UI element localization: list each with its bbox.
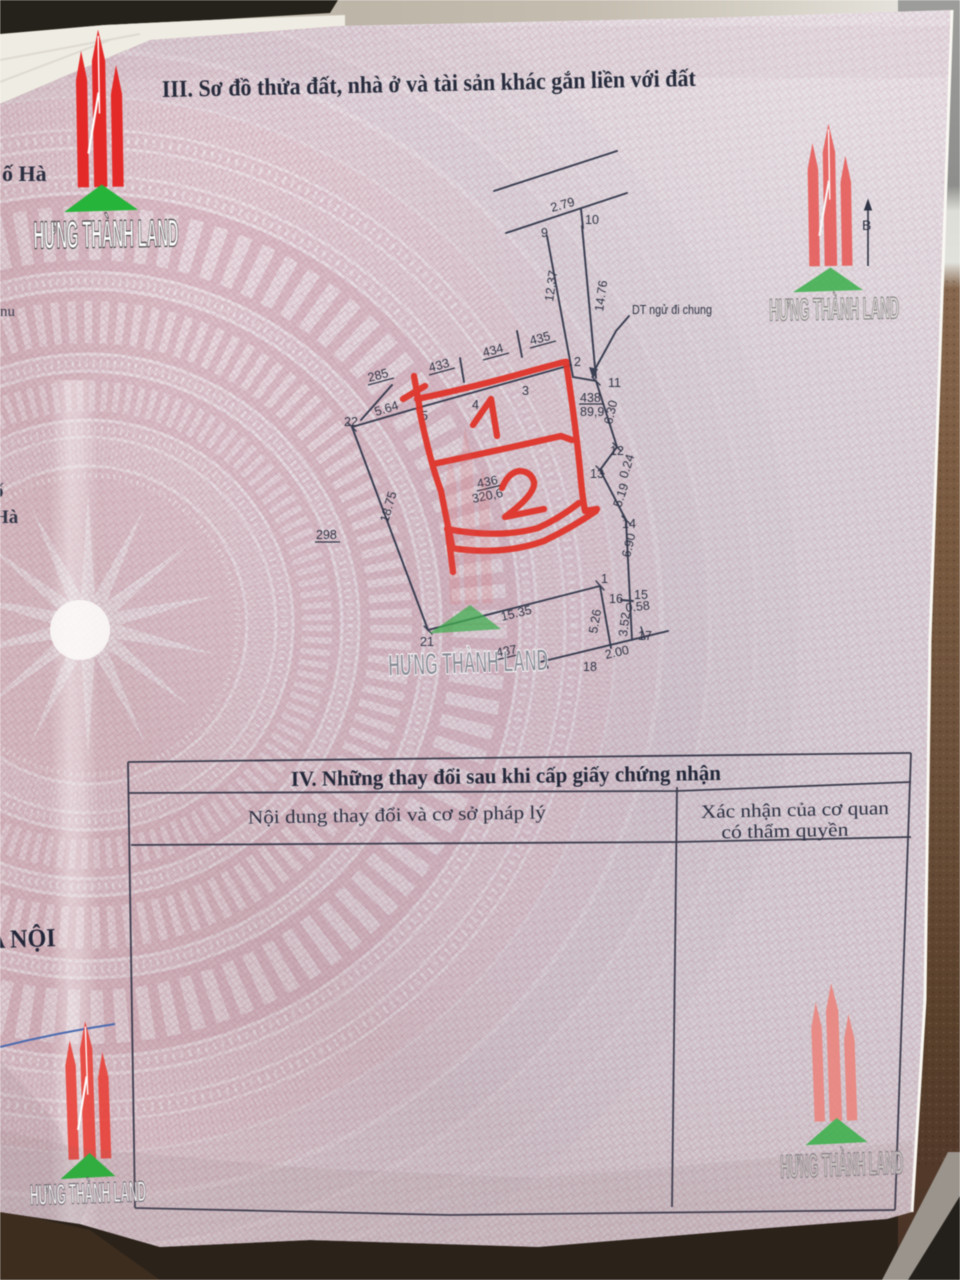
svg-text:ố Hà: ố Hà: [2, 161, 47, 186]
svg-text:10: 10: [585, 213, 599, 227]
svg-text:2: 2: [574, 355, 581, 369]
svg-text:nu: nu: [0, 304, 16, 320]
svg-text:HƯNG THÀNH LAND: HƯNG THÀNH LAND: [33, 211, 179, 258]
svg-text:9: 9: [541, 226, 548, 240]
svg-text:89,9: 89,9: [580, 405, 604, 419]
svg-text:có thẩm quyền: có thẩm quyền: [721, 820, 849, 844]
svg-text:Hà: Hà: [0, 507, 19, 528]
svg-text:0.58: 0.58: [625, 599, 651, 615]
svg-text:16: 16: [609, 592, 623, 606]
svg-text:14: 14: [622, 517, 636, 531]
svg-text:1: 1: [601, 572, 608, 586]
svg-text:22: 22: [344, 415, 358, 429]
svg-text:A NỘI: A NỘI: [0, 923, 56, 954]
svg-text:3.52: 3.52: [616, 611, 633, 637]
svg-text:13: 13: [590, 467, 604, 481]
svg-text:ố: ố: [0, 481, 4, 502]
svg-text:438: 438: [580, 391, 601, 405]
svg-text:Xác nhận của cơ quan: Xác nhận của cơ quan: [701, 798, 890, 823]
svg-text:3: 3: [522, 384, 529, 398]
svg-text:17: 17: [638, 629, 652, 643]
svg-text:B: B: [862, 217, 871, 233]
svg-text:298: 298: [316, 528, 337, 542]
svg-text:4: 4: [472, 398, 479, 412]
svg-text:12: 12: [610, 444, 624, 458]
svg-text:18: 18: [583, 660, 597, 674]
svg-text:HƯNG THÀNH LAND: HƯNG THÀNH LAND: [769, 290, 900, 327]
svg-text:11: 11: [608, 376, 621, 390]
svg-text:HƯNG THÀNH LAND: HƯNG THÀNH LAND: [388, 642, 549, 683]
svg-text:DT ngử đi chung: DT ngử đi chung: [632, 303, 712, 317]
